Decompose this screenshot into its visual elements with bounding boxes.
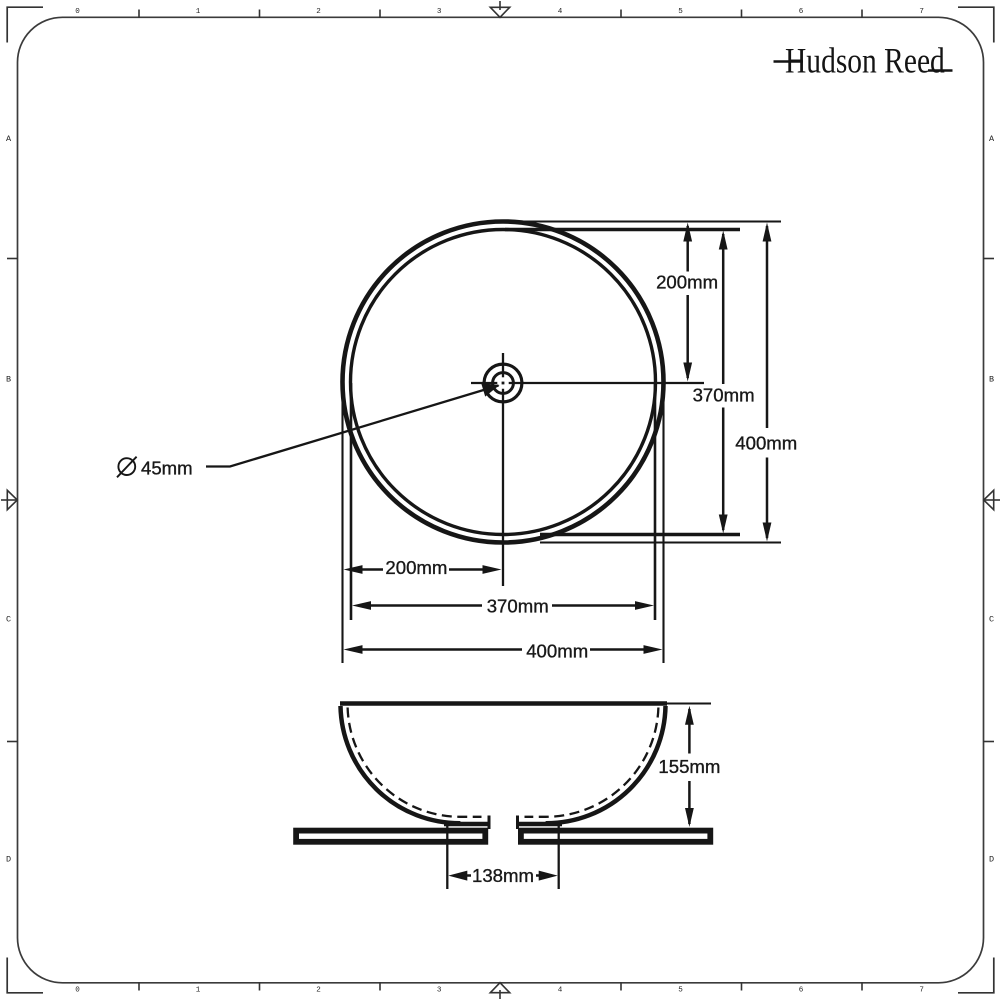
svg-text:Hudson Reed: Hudson Reed [785, 42, 945, 81]
svg-text:138mm: 138mm [472, 865, 534, 886]
svg-text:2: 2 [316, 987, 321, 995]
svg-text:4: 4 [558, 987, 563, 995]
svg-text:D: D [6, 855, 11, 865]
svg-text:7: 7 [919, 8, 924, 16]
svg-text:370mm: 370mm [693, 385, 755, 406]
svg-text:3: 3 [437, 987, 442, 995]
svg-text:2: 2 [316, 8, 321, 16]
svg-text:3: 3 [437, 8, 442, 16]
svg-text:B: B [989, 375, 994, 385]
svg-text:6: 6 [799, 987, 804, 995]
svg-text:0: 0 [75, 8, 80, 16]
svg-text:155mm: 155mm [658, 756, 720, 777]
svg-text:B: B [6, 375, 11, 385]
svg-text:C: C [989, 615, 994, 625]
svg-text:400mm: 400mm [526, 641, 588, 662]
svg-text:370mm: 370mm [487, 596, 549, 617]
svg-text:D: D [989, 855, 994, 865]
svg-text:C: C [6, 615, 11, 625]
svg-text:1: 1 [196, 8, 201, 16]
svg-text:1: 1 [196, 987, 201, 995]
svg-text:6: 6 [799, 8, 804, 16]
svg-text:5: 5 [678, 8, 683, 16]
svg-text:A: A [989, 134, 995, 144]
svg-text:200mm: 200mm [656, 272, 718, 293]
svg-text:A: A [6, 134, 12, 144]
svg-text:4: 4 [558, 8, 563, 16]
svg-text:7: 7 [919, 987, 924, 995]
svg-text:45mm: 45mm [141, 458, 193, 479]
svg-text:0: 0 [75, 987, 80, 995]
svg-text:400mm: 400mm [735, 433, 797, 454]
svg-text:200mm: 200mm [385, 557, 447, 578]
svg-text:5: 5 [678, 987, 683, 995]
